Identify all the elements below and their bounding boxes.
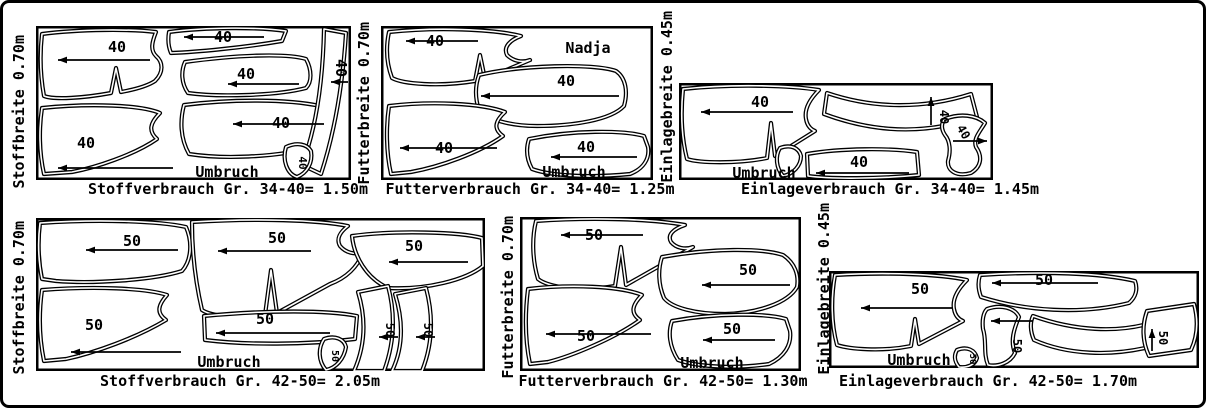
size-label: 50 xyxy=(911,280,929,298)
size-label: 50 xyxy=(1035,271,1053,289)
pattern-piece xyxy=(979,273,1137,310)
pattern-piece xyxy=(832,274,967,350)
panel-einlageverbrauch-42-50: Einlagebreite 0.45m 5050505050Umbruch Ei… xyxy=(3,3,1203,405)
size-label: 50 xyxy=(1156,331,1170,345)
size-label: 50 xyxy=(1010,339,1024,353)
size-label: 50 xyxy=(967,354,977,365)
consumption-caption: Einlageverbrauch Gr. 42-50= 1.70m xyxy=(835,372,1141,390)
fold-label: Umbruch xyxy=(887,351,950,368)
pattern-cutting-layout-sheet: Stoffbreite 0.70m 40404040404040Umbruch … xyxy=(0,0,1206,408)
cutting-layout-diagram: 5050505050Umbruch xyxy=(829,271,1199,368)
